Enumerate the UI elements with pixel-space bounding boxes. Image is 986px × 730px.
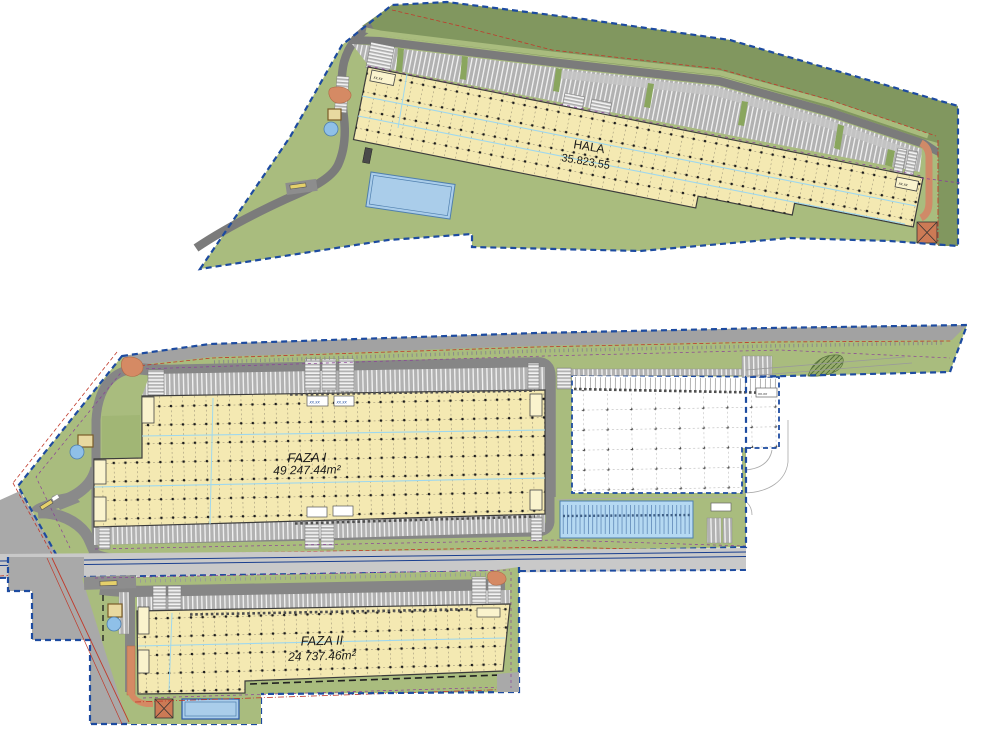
svg-text:FAZA II: FAZA II <box>300 632 343 648</box>
svg-text:xx.xx: xx.xx <box>757 391 768 396</box>
svg-text:xx.xx: xx.xx <box>309 400 321 405</box>
svg-text:24 737.46m²: 24 737.46m² <box>287 648 357 664</box>
svg-text:xx.xx: xx.xx <box>336 400 348 405</box>
svg-text:49 247.44m²: 49 247.44m² <box>273 462 342 477</box>
